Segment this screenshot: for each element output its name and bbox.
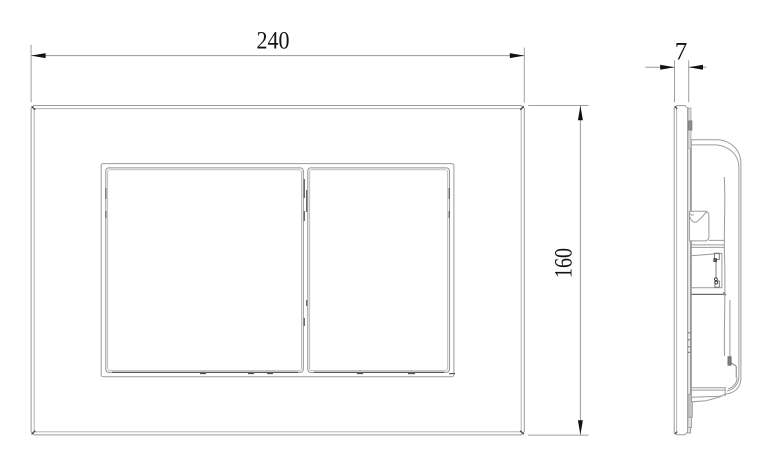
svg-text:7: 7 — [675, 39, 688, 66]
svg-text:160: 160 — [551, 248, 578, 278]
svg-text:240: 240 — [257, 27, 290, 54]
